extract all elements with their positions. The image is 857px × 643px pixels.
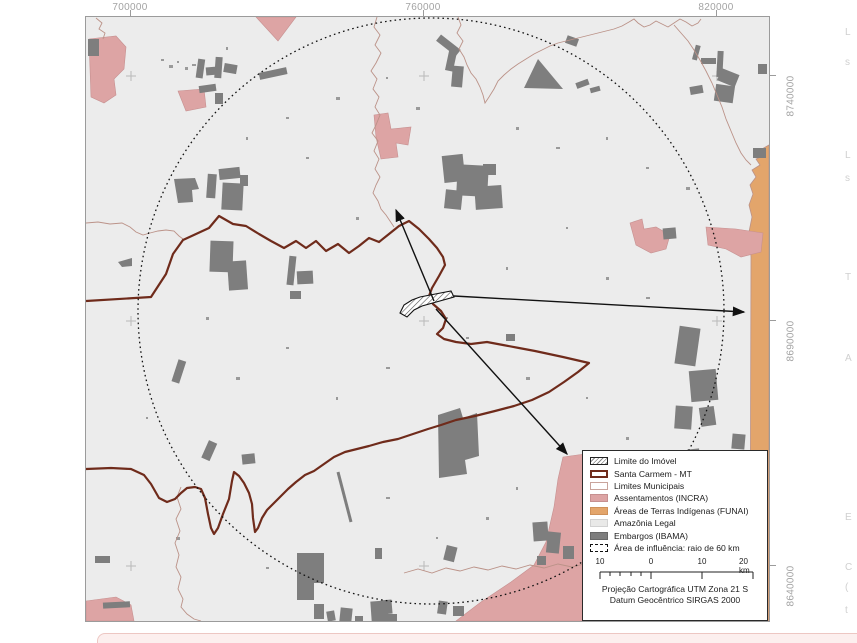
swatch-terras-indigenas [590, 507, 608, 515]
margin-letter: E [845, 512, 852, 523]
y-axis-tick [770, 75, 776, 76]
legend-label: Assentamentos (INCRA) [614, 493, 708, 503]
swatch-limites-municipais [590, 482, 608, 490]
margin-letter: s [845, 173, 850, 184]
y-axis-label: 8690000 [786, 321, 797, 362]
scale-bar-numbers: 10 0 10 20 km [590, 557, 760, 566]
scale-bar-ruler [590, 571, 762, 579]
projection-note-line2: Datum Geocêntrico SIRGAS 2000 [590, 595, 760, 606]
legend-label: Limite do Imóvel [614, 456, 677, 466]
legend-row: Limites Municipais [590, 480, 760, 492]
next-section-strip [97, 633, 857, 643]
legend-box: Limite do Imóvel Santa Carmem - MT Limit… [582, 450, 768, 621]
legend-row: Embargos (IBAMA) [590, 529, 760, 541]
margin-letter: L [845, 27, 851, 38]
legend-label: Limites Municipais [614, 481, 684, 491]
legend-label: Áreas de Terras Indígenas (FUNAI) [614, 506, 749, 516]
arrow-north [396, 210, 434, 301]
margin-letter: ( [845, 582, 848, 593]
legend-row: Assentamentos (INCRA) [590, 492, 760, 504]
projection-note-line1: Projeção Cartográfica UTM Zona 21 S [590, 584, 760, 595]
santa-carmem-boundary [86, 216, 589, 534]
legend-label: Amazônia Legal [614, 518, 676, 528]
swatch-assentamentos [590, 494, 608, 502]
margin-letter: A [845, 353, 852, 364]
y-axis-tick [770, 565, 776, 566]
y-axis-label: 8740000 [786, 76, 797, 117]
margin-letter: T [845, 272, 851, 283]
swatch-santa-carmem [590, 470, 608, 478]
scale-number: 10 [596, 557, 605, 566]
legend-row: Área de influência: raio de 60 km [590, 542, 760, 554]
margin-letter: s [845, 57, 850, 68]
legend-row: Áreas de Terras Indígenas (FUNAI) [590, 505, 760, 517]
arrow-east [454, 296, 744, 312]
swatch-amazonia-legal [590, 519, 608, 527]
legend-label: Área de influência: raio de 60 km [614, 543, 740, 553]
scale-number: 10 [698, 557, 707, 566]
swatch-area-influencia [590, 544, 608, 552]
scale-bar: 10 0 10 20 km [590, 557, 760, 584]
property-polygon [400, 291, 454, 317]
legend-row: Santa Carmem - MT [590, 467, 760, 479]
margin-letter: t [845, 605, 848, 616]
scale-number: 0 [649, 557, 653, 566]
margin-letter: L [845, 150, 851, 161]
swatch-embargos [590, 532, 608, 540]
scale-number: 20 km [739, 557, 753, 575]
swatch-limite-imovel [590, 457, 608, 465]
margin-letter: C [845, 562, 852, 573]
y-axis-tick [770, 320, 776, 321]
y-axis-label: 8640000 [786, 566, 797, 607]
legend-row: Limite do Imóvel [590, 455, 760, 467]
legend-label: Santa Carmem - MT [614, 469, 692, 479]
legend-label: Embargos (IBAMA) [614, 531, 688, 541]
legend-row: Amazônia Legal [590, 517, 760, 529]
page: 700000 760000 820000 8740000 8690000 864… [0, 0, 857, 643]
